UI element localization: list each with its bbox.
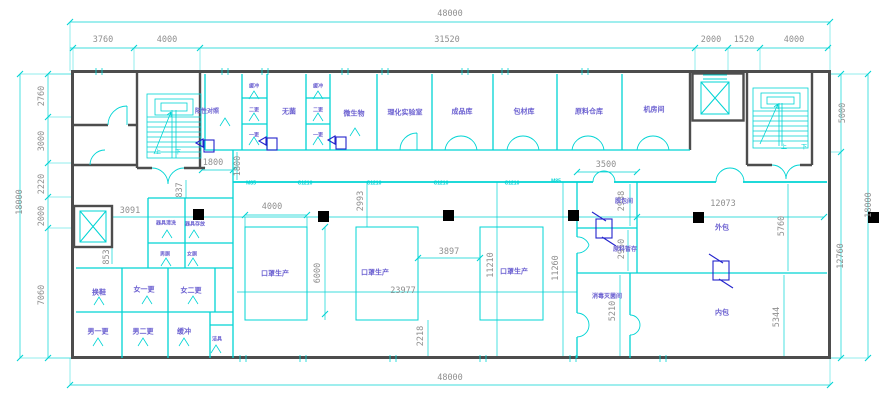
window-tag-4: C1210 [505, 182, 520, 187]
dim-5000: 5000 [839, 103, 848, 123]
room-packaging-materials: 包材库 [514, 109, 535, 116]
dim-6000: 6000 [314, 263, 323, 283]
room-buffer-1: 缓冲 [249, 85, 259, 90]
floor-plan-canvas [0, 0, 890, 408]
room-first-change-2: 一更 [313, 134, 323, 139]
room-women-toilet: 女厕 [187, 253, 197, 258]
room-men-second-change: 男二更 [133, 329, 154, 336]
dim-5344: 5344 [773, 307, 782, 327]
dim-3091: 3091 [120, 207, 140, 216]
dim-2220: 2220 [38, 174, 47, 194]
room-mask-production-3: 口罩生产 [500, 269, 528, 276]
dim-4000-top-right: 4000 [784, 36, 804, 45]
dim-1800-v: 1800 [234, 156, 243, 176]
room-raw-materials-warehouse: 原料仓库 [575, 109, 603, 116]
room-cleaning-tools: 洁具 [212, 338, 222, 343]
dim-837: 837 [176, 182, 185, 197]
dim-2993: 2993 [357, 191, 366, 211]
room-equipment-storage: 器具存放 [185, 223, 205, 228]
dim-1520: 1520 [734, 36, 754, 45]
stairs-left [147, 94, 201, 158]
room-shoe-change: 换鞋 [92, 290, 106, 297]
dim-overall-width-top: 48000 [437, 10, 463, 19]
dim-overall-height-right: 18000 [865, 192, 874, 218]
dim-853: 853 [103, 249, 112, 264]
stair-up-right: 上 [781, 145, 787, 151]
dim-2218: 2218 [417, 326, 426, 346]
room-equipment-washing: 器具清洗 [156, 222, 176, 227]
room-finished-goods: 成品库 [452, 109, 473, 116]
elevator-shaft-right [693, 74, 744, 121]
elevator-right-icon [701, 75, 729, 114]
floor-plan: 48000 3760 4000 31520 2000 1520 4000 276… [0, 0, 890, 408]
room-positive-control: 阳性对照 [195, 109, 219, 115]
room-buffer-3: 缓冲 [177, 329, 191, 336]
dim-1800-h: 1800 [203, 159, 223, 168]
dim-3000: 3000 [38, 131, 47, 151]
dim-overall-width-bottom: 48000 [437, 374, 463, 383]
room-microbiology: 微生物 [344, 111, 365, 118]
window-tag-3: C1210 [434, 182, 449, 187]
pass-box-icons [196, 136, 733, 288]
stair-down-left: 下 [175, 150, 181, 156]
dim-4000-top-left: 4000 [157, 36, 177, 45]
room-women-second-change: 女二更 [181, 288, 202, 295]
stairs-right [753, 88, 808, 148]
door-tag-2: M85 [551, 180, 561, 185]
room-inner-packaging: 内包 [715, 310, 729, 317]
door-tag-1: M85 [246, 182, 256, 187]
window-tag-1: C1210 [298, 182, 313, 187]
dim-4000-zone: 4000 [262, 203, 282, 212]
dim-5760: 5760 [778, 216, 787, 236]
room-men-toilet: 男厕 [160, 253, 170, 258]
room-unpacking: 脱包间 [615, 199, 633, 205]
dim-2000-top: 2000 [701, 36, 721, 45]
dim-7060: 7060 [38, 285, 47, 305]
dim-31520: 31520 [434, 36, 460, 45]
room-mask-production-2: 口罩生产 [361, 270, 389, 277]
room-raw-material-staging: 原料暂存 [613, 247, 637, 253]
dim-11260: 11260 [552, 255, 561, 281]
dim-23977: 23977 [390, 287, 416, 296]
room-second-change-1: 二更 [249, 109, 259, 114]
dim-3760: 3760 [93, 36, 113, 45]
room-machine-room: 机房间 [644, 107, 665, 114]
dim-12760: 12760 [837, 243, 846, 269]
room-second-change-2: 二更 [313, 109, 323, 114]
dim-11210: 11210 [487, 252, 496, 278]
dim-5210: 5210 [609, 301, 618, 321]
dim-overall-height-left: 18000 [16, 189, 25, 215]
elevator-left-icon [80, 211, 106, 242]
stair-up-left: 上 [155, 150, 161, 156]
room-men-first-change: 男一更 [88, 329, 109, 336]
dim-2000-left: 2000 [38, 206, 47, 226]
dim-2760: 2760 [38, 86, 47, 106]
window-tag-2: C1210 [367, 182, 382, 187]
room-mask-production-1: 口罩生产 [261, 271, 289, 278]
room-first-change-1: 一更 [249, 134, 259, 139]
dim-3500: 3500 [596, 161, 616, 170]
room-women-first-change: 女一更 [134, 287, 155, 294]
room-sterile: 无菌 [282, 109, 296, 116]
dim-3897: 3897 [439, 248, 459, 257]
room-physchem-lab: 理化实验室 [388, 110, 423, 117]
room-buffer-2: 缓冲 [313, 85, 323, 90]
room-sterilization: 消毒灭菌间 [592, 294, 622, 300]
room-outer-packaging: 外包 [715, 225, 729, 232]
stair-down-right: 下 [801, 145, 807, 151]
dim-12073: 12073 [710, 200, 736, 209]
